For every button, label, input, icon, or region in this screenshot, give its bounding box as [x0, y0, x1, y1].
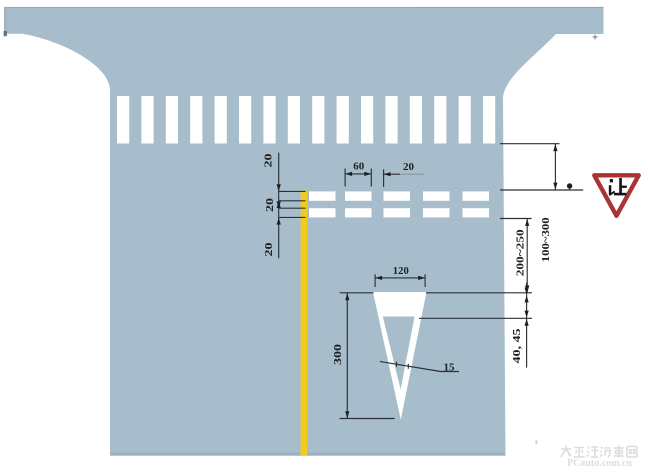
svg-text:100~300: 100~300 — [540, 217, 552, 263]
svg-text:200~250: 200~250 — [514, 229, 526, 277]
svg-text:120: 120 — [393, 265, 409, 277]
svg-text:300: 300 — [332, 343, 344, 365]
svg-text:20: 20 — [264, 197, 276, 212]
svg-text:PCauto.com.cn: PCauto.com.cn — [567, 458, 632, 469]
svg-text:20: 20 — [403, 161, 415, 173]
svg-text:20: 20 — [263, 153, 275, 168]
svg-text:15: 15 — [444, 361, 456, 373]
svg-text:60: 60 — [353, 161, 365, 173]
svg-text:40, 45: 40, 45 — [511, 328, 523, 364]
svg-text:20: 20 — [263, 242, 275, 257]
